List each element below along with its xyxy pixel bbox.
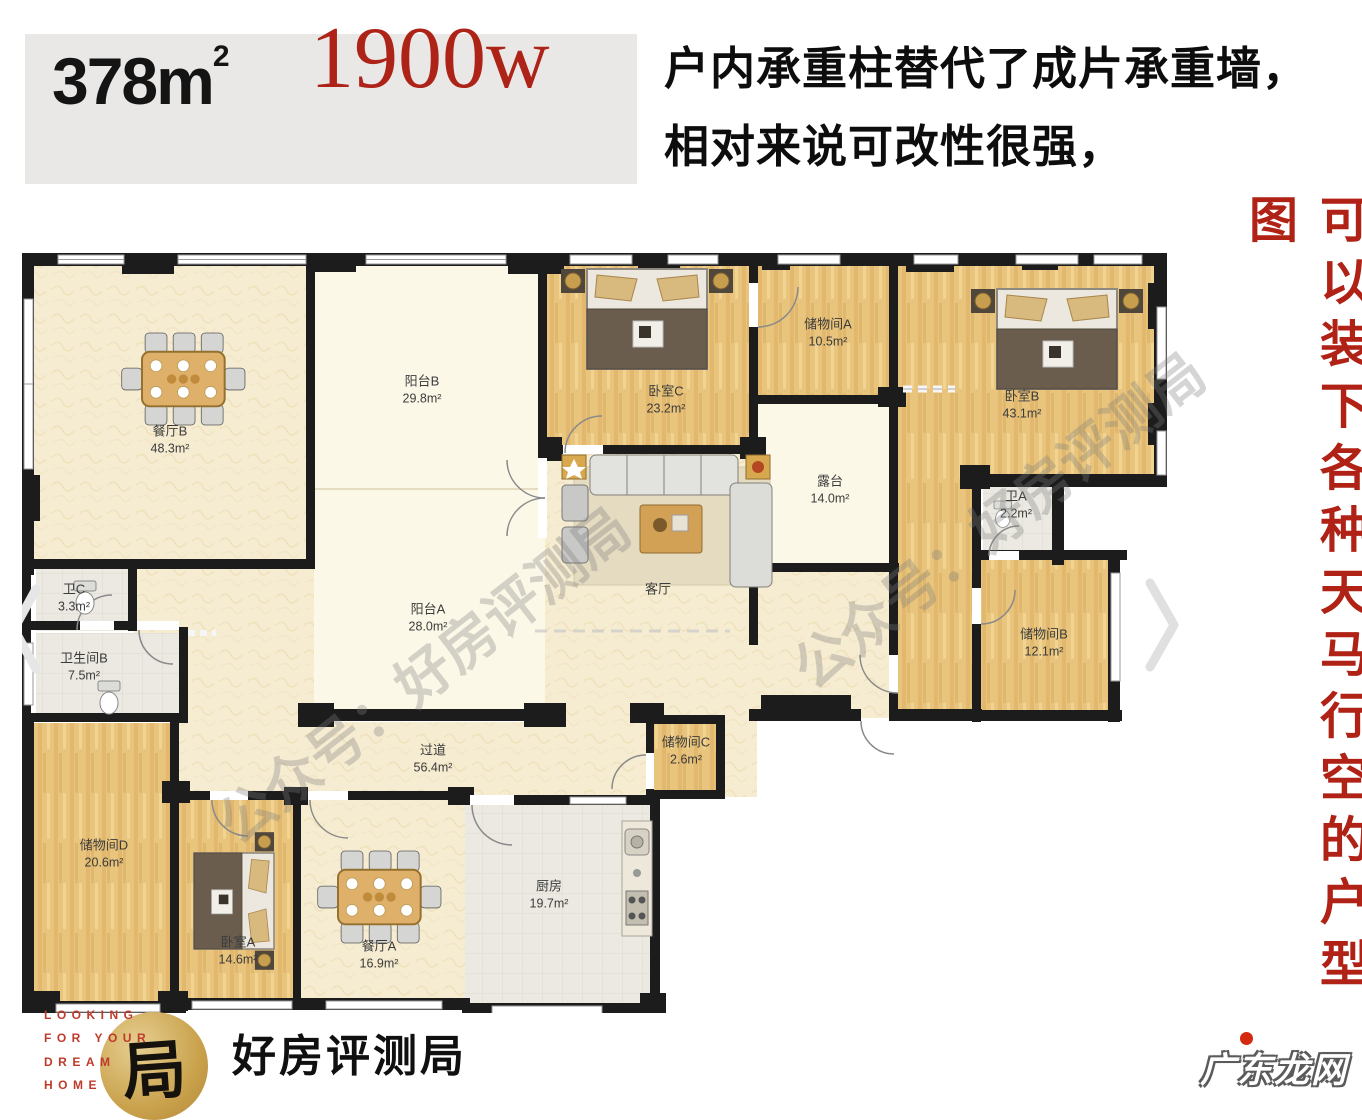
- room-label-storage-d: 储物间D20.6m²: [80, 837, 128, 870]
- right-chevron-icon: [1150, 583, 1174, 667]
- room-label-dining-b: 餐厅B48.3m²: [151, 423, 190, 456]
- brand-tagline: LOOKING FOR YOUR DREAM HOME: [44, 1004, 151, 1098]
- room-label-bedroom-c: 卧室C23.2m²: [647, 383, 686, 416]
- room-label-storage-c: 储物间C2.6m²: [662, 734, 710, 767]
- sofa-set-icon: [562, 455, 772, 587]
- room-label-bedroom-b: 卧室B43.1m²: [1003, 388, 1042, 421]
- note-line-2: 相对来说可改性很强，: [664, 108, 1362, 186]
- room-label-storage-a: 储物间A10.5m²: [804, 316, 852, 349]
- floor-plan-graphic: [22, 253, 1192, 1013]
- floor-plan: 餐厅B48.3m² 阳台B29.8m² 卧室C23.2m² 储物间A10.5m²…: [22, 253, 1192, 1013]
- room-label-bath-b: 卫生间B7.5m²: [60, 650, 108, 683]
- brand-name: 好房评测局: [232, 1020, 467, 1084]
- apartment-area: 378m2: [52, 40, 230, 119]
- room-label-storage-b: 储物间B12.1m²: [1020, 626, 1068, 659]
- kitchen-counter-icon: [622, 821, 652, 936]
- room-label-bath-c: 卫C3.3m²: [58, 581, 90, 614]
- corner-watermark-dot: [1240, 1032, 1253, 1045]
- room-label-balcony-a: 阳台A28.0m²: [409, 601, 448, 634]
- page: { "header": { "area_value": "378", "area…: [0, 0, 1362, 1102]
- room-label-hallway: 过道56.4m²: [414, 742, 453, 775]
- room-label-living: 客厅: [645, 582, 671, 599]
- room-label-balcony-b: 阳台B29.8m²: [403, 373, 442, 406]
- vertical-slogan: 可以装下各种天马行空的户型图: [1234, 194, 1362, 1042]
- floor-dining-b: [30, 262, 313, 568]
- note-line-1: 户内承重柱替代了成片承重墙，: [664, 30, 1362, 108]
- room-label-bath-a: 卫A2.2m²: [1000, 488, 1032, 521]
- apartment-price: 1900w: [310, 8, 550, 109]
- room-label-bedroom-a: 卧室A14.6m²: [219, 934, 258, 967]
- description-note: 户内承重柱替代了成片承重墙， 相对来说可改性很强，: [664, 30, 1362, 187]
- room-label-terrace: 露台14.0m²: [811, 473, 850, 506]
- room-label-kitchen: 厨房19.7m²: [530, 878, 569, 911]
- corner-watermark: 广东龙网: [1200, 1042, 1348, 1093]
- room-label-dining-a: 餐厅A16.9m²: [360, 938, 399, 971]
- floor-corridor-strip: [898, 487, 979, 719]
